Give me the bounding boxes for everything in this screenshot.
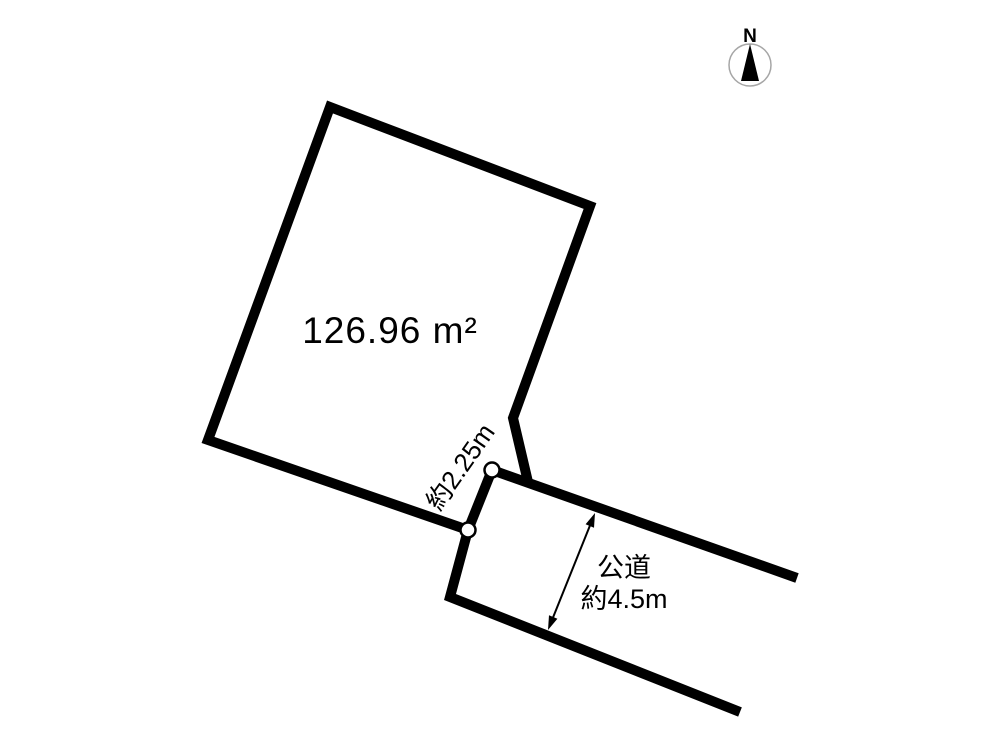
boundary-point-marker [485, 463, 500, 478]
diagram-canvas [0, 0, 1000, 750]
compass [729, 44, 771, 86]
north-arrow-icon [741, 44, 759, 81]
road-name-label: 公道 [580, 553, 667, 584]
parcel-area-label: 126.96 m² [302, 310, 478, 352]
road-width-label: 約4.5m [580, 584, 667, 615]
road-label: 公道 約4.5m [580, 553, 667, 615]
boundary-point-marker [461, 523, 476, 538]
north-label: N [743, 26, 757, 48]
land-plot-diagram: 126.96 m² 約2.25m 公道 約4.5m N [0, 0, 1000, 750]
